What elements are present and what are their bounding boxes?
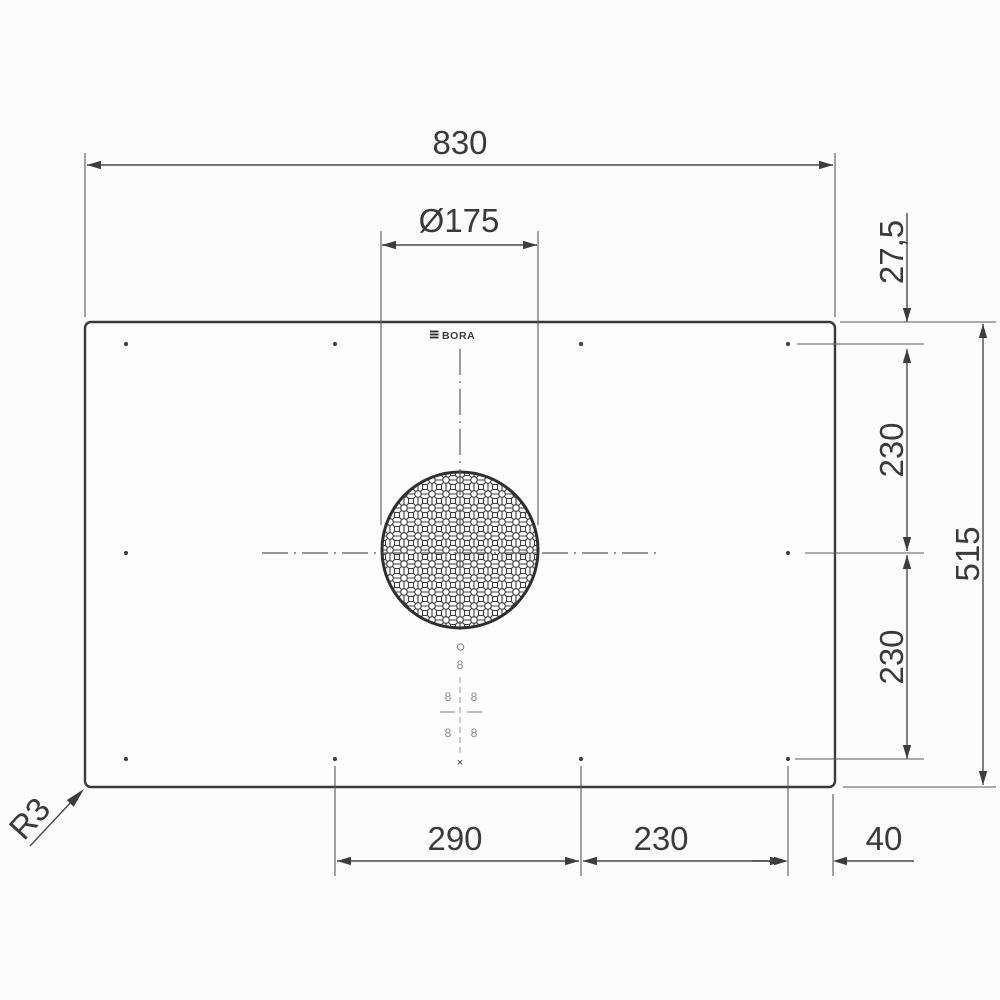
display-digit: 8 — [471, 690, 478, 704]
zone-marker — [786, 757, 790, 761]
zone-marker — [333, 757, 337, 761]
arrow-left-icon — [382, 241, 396, 249]
display-digit: 8 — [445, 690, 452, 704]
dim-label-center-to-zone-bottom: 230 — [873, 629, 910, 684]
zone-marker — [124, 757, 128, 761]
technical-drawing-page: BORA 8 8 8 8 8 × — [0, 0, 1000, 1000]
display-digit: 8 — [457, 658, 464, 672]
arrow-up-icon — [903, 555, 911, 569]
dim-zone-span-right: 230 — [583, 820, 784, 865]
dim-label-zone-span-left: 290 — [427, 820, 482, 857]
display-digit: 8 — [445, 726, 452, 740]
dim-label-corner-radius: R3 — [2, 790, 58, 846]
arrow-left-icon — [87, 161, 101, 169]
arrow-down-icon — [903, 745, 911, 759]
zone-marker — [786, 342, 790, 346]
dim-label-duct-diameter: Ø175 — [419, 202, 500, 239]
zone-marker — [124, 551, 128, 555]
arrow-right-icon — [774, 857, 788, 865]
dim-edge-to-zone-top: 27,5 — [873, 213, 911, 322]
dim-corner-radius: R3 — [2, 789, 84, 846]
arrow-right-icon — [565, 857, 579, 865]
arrow-left-icon — [583, 857, 597, 865]
dim-label-edge-to-zone-top: 27,5 — [873, 220, 910, 284]
zone-marker — [333, 342, 337, 346]
arrow-down-icon — [903, 537, 911, 551]
dim-label-total-depth: 515 — [949, 526, 986, 581]
arrow-right-icon — [523, 241, 537, 249]
drawing-svg: BORA 8 8 8 8 8 × — [0, 0, 1000, 1000]
zone-marker — [579, 757, 583, 761]
dim-total-depth: 515 — [949, 324, 987, 785]
bora-logo-text: BORA — [442, 330, 475, 342]
arrow-left-icon — [337, 857, 351, 865]
zone-marker — [124, 342, 128, 346]
dim-zone-span-left: 290 — [337, 820, 579, 865]
bora-logo-bars-icon — [430, 331, 439, 339]
dim-label-zone-top-to-center: 230 — [873, 422, 910, 477]
cross-marker: × — [457, 757, 463, 769]
dim-label-zone-to-edge: 40 — [866, 820, 903, 857]
arrow-left-icon — [833, 857, 847, 865]
arrow-down-icon — [979, 771, 987, 785]
dim-label-zone-span-right: 230 — [633, 820, 688, 857]
display-digit: 8 — [471, 726, 478, 740]
dim-center-to-zone-bottom: 230 — [873, 555, 911, 759]
arrow-up-icon — [979, 324, 987, 338]
arrow-up-icon — [903, 349, 911, 363]
arrow-right-icon — [819, 161, 833, 169]
arrow-down-icon — [903, 308, 911, 322]
dim-zone-top-to-center: 230 — [873, 349, 911, 551]
dim-label-total-width: 830 — [432, 124, 487, 161]
zone-marker — [579, 342, 583, 346]
zone-marker — [786, 551, 790, 555]
